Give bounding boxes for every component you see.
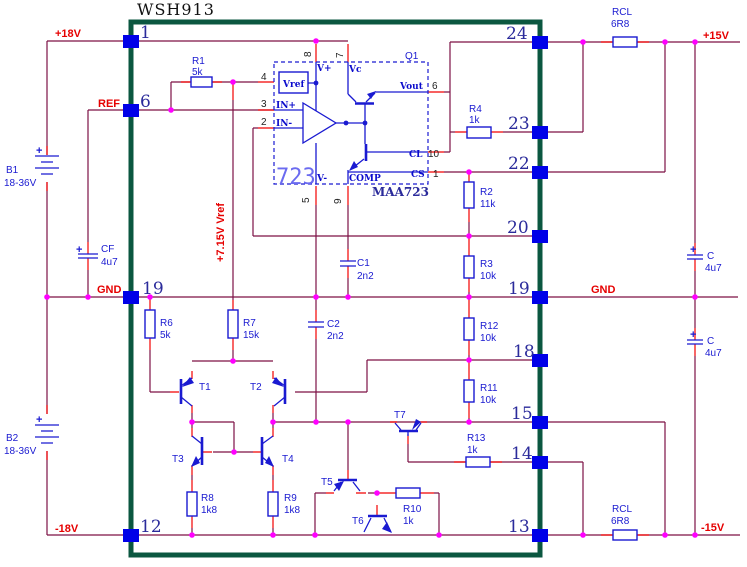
pin-label-19-left: 19 (142, 279, 164, 299)
pin-label-6: 6 (140, 92, 151, 112)
net-label-plus15v: +15V (703, 30, 730, 42)
ic-pin-6: 6 (432, 81, 438, 92)
label-rcl-top-val: 6R8 (611, 19, 630, 30)
label-cf-ref: CF (101, 244, 114, 255)
pad-pin-15 (532, 416, 548, 429)
label-r4-val: 1k (469, 115, 481, 126)
label-r11-ref: R11 (480, 383, 498, 394)
port-comp: COMP (349, 174, 381, 184)
pad-pin-19-right (532, 291, 548, 304)
pass-transistor-arrow-icon (367, 91, 376, 99)
pin-label-18: 18 (513, 342, 535, 362)
plus-b2-icon: + (36, 414, 42, 426)
label-r7-val: 15k (243, 330, 260, 341)
label-b1-ref: B1 (6, 165, 19, 176)
schematic-canvas: WSH913 Vref V+ Vc IN+ IN- V- COMP Vout C… (0, 0, 747, 567)
pad-pin-12 (123, 529, 139, 542)
resistor-r3 (464, 256, 474, 278)
resistor-rcl-bottom (613, 530, 637, 540)
port-vref: Vref (282, 80, 305, 90)
resistor-r1 (191, 77, 212, 87)
label-r9-ref: R9 (284, 493, 297, 504)
plus-c-top-icon: + (690, 244, 696, 256)
label-t4: T4 (282, 454, 294, 465)
label-r13-val: 1k (467, 445, 479, 456)
label-b1-val: 18-36V (4, 178, 37, 189)
net-label-gnd-right: GND (591, 284, 616, 296)
ic-pin-10: 10 (428, 149, 440, 160)
t4-arrow-icon (265, 456, 274, 467)
pin-label-12: 12 (140, 517, 162, 537)
label-r11-val: 10k (480, 395, 497, 406)
ic-pin-4: 4 (261, 72, 267, 83)
pad-pin-14 (532, 456, 548, 469)
label-t1: T1 (199, 382, 211, 393)
label-r6-val: 5k (160, 330, 172, 341)
transistor-t2 (272, 377, 285, 406)
port-in-plus: IN+ (276, 101, 296, 111)
plus-c-bottom-icon: + (690, 329, 696, 341)
transistor-t6 (364, 516, 392, 533)
net-label-gnd-left: GND (97, 284, 122, 296)
resistor-r2 (464, 182, 474, 208)
pin-label-19-right: 19 (508, 279, 530, 299)
resistor-r13 (466, 457, 490, 467)
label-b2-ref: B2 (6, 433, 19, 444)
port-vout: Vout (399, 82, 424, 92)
resistor-r7 (228, 310, 238, 338)
label-t7: T7 (394, 410, 406, 421)
label-r1-ref: R1 (192, 56, 205, 67)
label-rcl-bottom-ref: RCL (612, 504, 632, 515)
ic-pin-3: 3 (261, 99, 267, 110)
component-labels: R1 5k R2 11k R3 10k R4 1k R6 5k R7 15k R… (4, 7, 722, 527)
designator-q1: Q1 (405, 51, 419, 62)
label-r9-val: 1k8 (284, 505, 301, 516)
pin-label-22: 22 (508, 154, 530, 174)
junction-vref (314, 81, 319, 86)
net-label-ref: REF (98, 98, 120, 110)
transistor-t4 (262, 436, 274, 467)
resistor-r9 (268, 492, 278, 516)
label-r10-ref: R10 (403, 504, 422, 515)
label-c2-ref: C2 (327, 319, 340, 330)
label-r1-val: 5k (192, 67, 204, 78)
resistor-r8 (187, 492, 197, 516)
ic-pin-9: 9 (333, 198, 344, 204)
schematic-page: WSH913 Vref V+ Vc IN+ IN- V- COMP Vout C… (0, 0, 747, 567)
junction-base (363, 121, 368, 126)
plus-b1-icon: + (36, 145, 42, 157)
port-cl: CL (409, 150, 423, 160)
resistor-r12 (464, 318, 474, 340)
pad-pin-6 (123, 104, 139, 117)
ic-pin-2: 2 (261, 117, 267, 128)
transistor-t5 (334, 480, 360, 491)
ic-723-block: Vref V+ Vc IN+ IN- V- COMP Vout CL CS 4 … (261, 51, 440, 204)
port-cs: CS (411, 170, 425, 180)
pad-pin-1 (123, 35, 139, 48)
net-label-minus15v: -15V (701, 522, 725, 534)
opamp-triangle-icon (303, 103, 336, 143)
label-t5: T5 (321, 477, 333, 488)
label-c2-val: 2n2 (327, 331, 344, 342)
ic-723-label: 723 (276, 165, 316, 190)
label-rcl-top-ref: RCL (612, 7, 632, 18)
resistor-r6 (145, 310, 155, 338)
label-t2: T2 (250, 382, 262, 393)
ic-723-part-number: MAA723 (372, 185, 429, 199)
label-r10-val: 1k (403, 516, 415, 527)
resistor-rcl-top (613, 37, 637, 47)
port-vminus: V- (316, 174, 327, 184)
label-rcl-bottom-val: 6R8 (611, 516, 630, 527)
battery-b2 (35, 425, 59, 443)
pin-label-15: 15 (511, 404, 533, 424)
junction-opamp-out (344, 121, 349, 126)
ic-pin-8: 8 (303, 51, 314, 57)
net-label-vref-rail: +7.15V Vref (215, 203, 227, 262)
pin-label-13: 13 (508, 517, 530, 537)
pad-pin-19-left (123, 291, 139, 304)
capacitors (78, 254, 703, 344)
label-c-top-val: 4u7 (705, 263, 722, 274)
label-t6: T6 (352, 516, 364, 527)
resistor-r4 (467, 127, 491, 138)
port-vplus: V+ (316, 64, 332, 74)
port-in-minus: IN- (276, 119, 292, 129)
limit-transistor-arrow-icon (349, 161, 358, 171)
resistor-r11 (464, 380, 474, 402)
pad-pin-20 (532, 230, 548, 243)
net-label-plus18v: +18V (55, 28, 82, 40)
pin-label-14: 14 (511, 444, 533, 464)
label-r6-ref: R6 (160, 318, 173, 329)
pad-pin-24 (532, 36, 548, 49)
pin-label-23: 23 (508, 114, 530, 134)
label-b2-val: 18-36V (4, 446, 37, 457)
label-r13-ref: R13 (467, 433, 486, 444)
ic-pin-1: 1 (433, 169, 439, 180)
label-r2-ref: R2 (480, 187, 493, 198)
pad-pin-13 (532, 529, 548, 542)
capacitor-c2 (308, 322, 324, 327)
label-c1-ref: C1 (357, 258, 370, 269)
transistor-t1 (181, 377, 194, 406)
t3-arrow-icon (191, 456, 200, 467)
battery-b1 (35, 156, 59, 174)
pin-label-1: 1 (140, 23, 151, 43)
label-r3-ref: R3 (480, 259, 493, 270)
label-r12-ref: R12 (480, 321, 499, 332)
net-label-minus18v: -18V (55, 523, 79, 535)
label-cf-val: 4u7 (101, 257, 118, 268)
label-c-bottom-ref: C (707, 336, 714, 347)
resistors (145, 37, 637, 540)
plus-cf-icon: + (76, 244, 82, 256)
label-r3-val: 10k (480, 271, 497, 282)
port-vc: Vc (348, 65, 362, 75)
pad-pin-23 (532, 126, 548, 139)
label-r8-ref: R8 (201, 493, 214, 504)
label-r8-val: 1k8 (201, 505, 218, 516)
t6-arrow-icon (382, 522, 392, 533)
capacitor-c1 (340, 261, 356, 266)
pin-label-24: 24 (506, 24, 528, 44)
label-c-top-ref: C (707, 251, 714, 262)
label-t3: T3 (172, 454, 184, 465)
pin-label-20: 20 (507, 218, 529, 238)
chip-title: WSH913 (137, 0, 215, 19)
ic-pin-5: 5 (301, 197, 312, 203)
label-r4-ref: R4 (469, 104, 482, 115)
transistor-t3 (191, 436, 202, 467)
ic-pin-7: 7 (335, 52, 346, 58)
label-c-bottom-val: 4u7 (705, 348, 722, 359)
label-r12-val: 10k (480, 333, 497, 344)
label-c1-val: 2n2 (357, 271, 374, 282)
label-r7-ref: R7 (243, 318, 256, 329)
pad-pin-22 (532, 166, 548, 179)
resistor-r10 (396, 488, 420, 498)
label-r2-val: 11k (480, 199, 496, 210)
